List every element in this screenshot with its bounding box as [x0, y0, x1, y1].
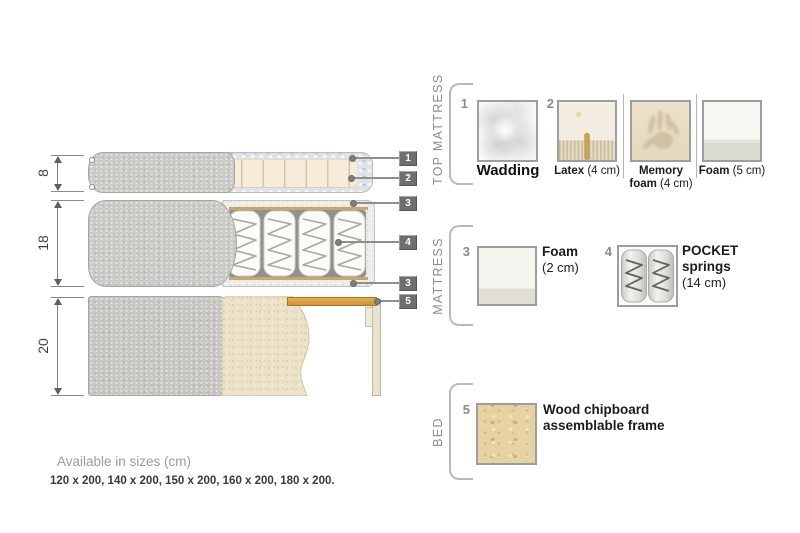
latex-name: Latex [554, 165, 584, 177]
mattress-infographic: 8 18 20 [0, 0, 800, 533]
cover-snap-icon [89, 157, 95, 163]
pocket-springs-swatch [617, 245, 678, 307]
marker-dot-icon [350, 280, 357, 287]
cover-snap-icon [89, 184, 95, 190]
foam-2cm-detail: (2 cm) [542, 260, 612, 276]
legend-number-4: 4 [596, 244, 612, 259]
wood-chipboard-swatch [476, 403, 537, 465]
sizes-list: 120 x 200, 140 x 200, 150 x 200, 160 x 2… [50, 475, 335, 487]
marker-5: 5 [399, 294, 417, 309]
arrow-down-icon [54, 388, 62, 395]
mattress-bracket [449, 225, 473, 326]
pocket-springs-row [228, 210, 366, 277]
marker-dot-icon [348, 175, 355, 182]
section-title-bed: BED [431, 381, 447, 483]
memory-foam-label: Memory foam (4 cm) [626, 165, 696, 191]
wood-chipboard-name: Wood chipboard assemblable frame [543, 402, 677, 434]
arrow-up-icon [54, 156, 62, 163]
sizes-heading: Available in sizes (cm) [57, 454, 191, 469]
marker-2: 2 [399, 171, 417, 186]
legend-number-1: 1 [452, 96, 468, 111]
section-title-mattress: MATTRESS [431, 225, 447, 327]
arrow-up-icon [54, 201, 62, 208]
marker-3-bottom: 3 [399, 276, 417, 291]
wadding-swatch [477, 100, 538, 162]
pocket-springs-label: POCKET springs (14 cm) [682, 243, 766, 291]
latex-drawing [559, 102, 615, 160]
latex-detail: (4 cm) [587, 165, 620, 177]
dimension-label-18: 18 [35, 228, 51, 258]
legend-number-2: 2 [538, 96, 554, 111]
dimension-label-8: 8 [35, 158, 51, 188]
latex-swatch [557, 100, 617, 162]
springs-drawing [228, 210, 366, 277]
dimension-line [57, 202, 58, 285]
mattress-foam-edge-bottom [229, 277, 368, 280]
leader-line-1 [352, 157, 399, 159]
foam-5cm-label: Foam (5 cm) [690, 165, 774, 178]
leader-line-3 [353, 202, 399, 204]
foam-5cm-detail: (5 cm) [733, 165, 766, 177]
memory-foam-hand-drawing [632, 102, 689, 160]
leader-line-4 [338, 241, 399, 243]
marker-4: 4 [399, 235, 417, 250]
bed-bracket [449, 383, 473, 480]
bed-frame-side [372, 299, 381, 396]
marker-dot-icon [349, 155, 356, 162]
legend-divider [623, 94, 624, 178]
foam-5cm-name: Foam [699, 165, 730, 177]
leader-line-2 [351, 177, 399, 179]
dimension-label-20: 20 [35, 331, 51, 361]
bed-cover [88, 296, 231, 396]
dimension-line [57, 299, 58, 394]
arrow-down-icon [54, 279, 62, 286]
leader-line-5 [353, 282, 399, 284]
top-mattress-cover [88, 152, 235, 193]
arrow-down-icon [54, 184, 62, 191]
pocket-springs-name: POCKET springs [682, 243, 766, 275]
marker-3-top: 3 [399, 196, 417, 211]
dimension-arrow-bed [51, 297, 84, 396]
mattress-cover [88, 200, 237, 287]
legend-number-5: 5 [454, 402, 470, 417]
memory-foam-swatch [630, 100, 691, 162]
pocket-springs-drawing [619, 247, 676, 305]
dimension-arrow-top-mattress [51, 155, 84, 192]
foam-5cm-swatch [702, 100, 762, 162]
marker-dot-icon [374, 298, 381, 305]
bed-wooden-slat [287, 297, 377, 306]
legend-number-3: 3 [454, 244, 470, 259]
marker-1: 1 [399, 151, 417, 166]
dimension-arrow-mattress [51, 200, 84, 287]
pocket-springs-detail: (14 cm) [682, 275, 766, 291]
bed-frame-bracket [365, 307, 373, 327]
bed-chipboard-drape [222, 296, 322, 396]
top-mattress-foam-blocks [221, 159, 357, 188]
marker-dot-icon [335, 239, 342, 246]
arrow-up-icon [54, 298, 62, 305]
section-title-top-mattress: TOP MATTRESS [431, 83, 447, 185]
marker-dot-icon [350, 200, 357, 207]
memory-foam-detail: (4 cm) [660, 178, 693, 190]
chipboard-drawing [222, 296, 322, 396]
latex-label: Latex (4 cm) [541, 165, 633, 178]
wood-chipboard-label: Wood chipboard assemblable frame [543, 402, 677, 434]
foam-2cm-swatch [477, 246, 537, 306]
